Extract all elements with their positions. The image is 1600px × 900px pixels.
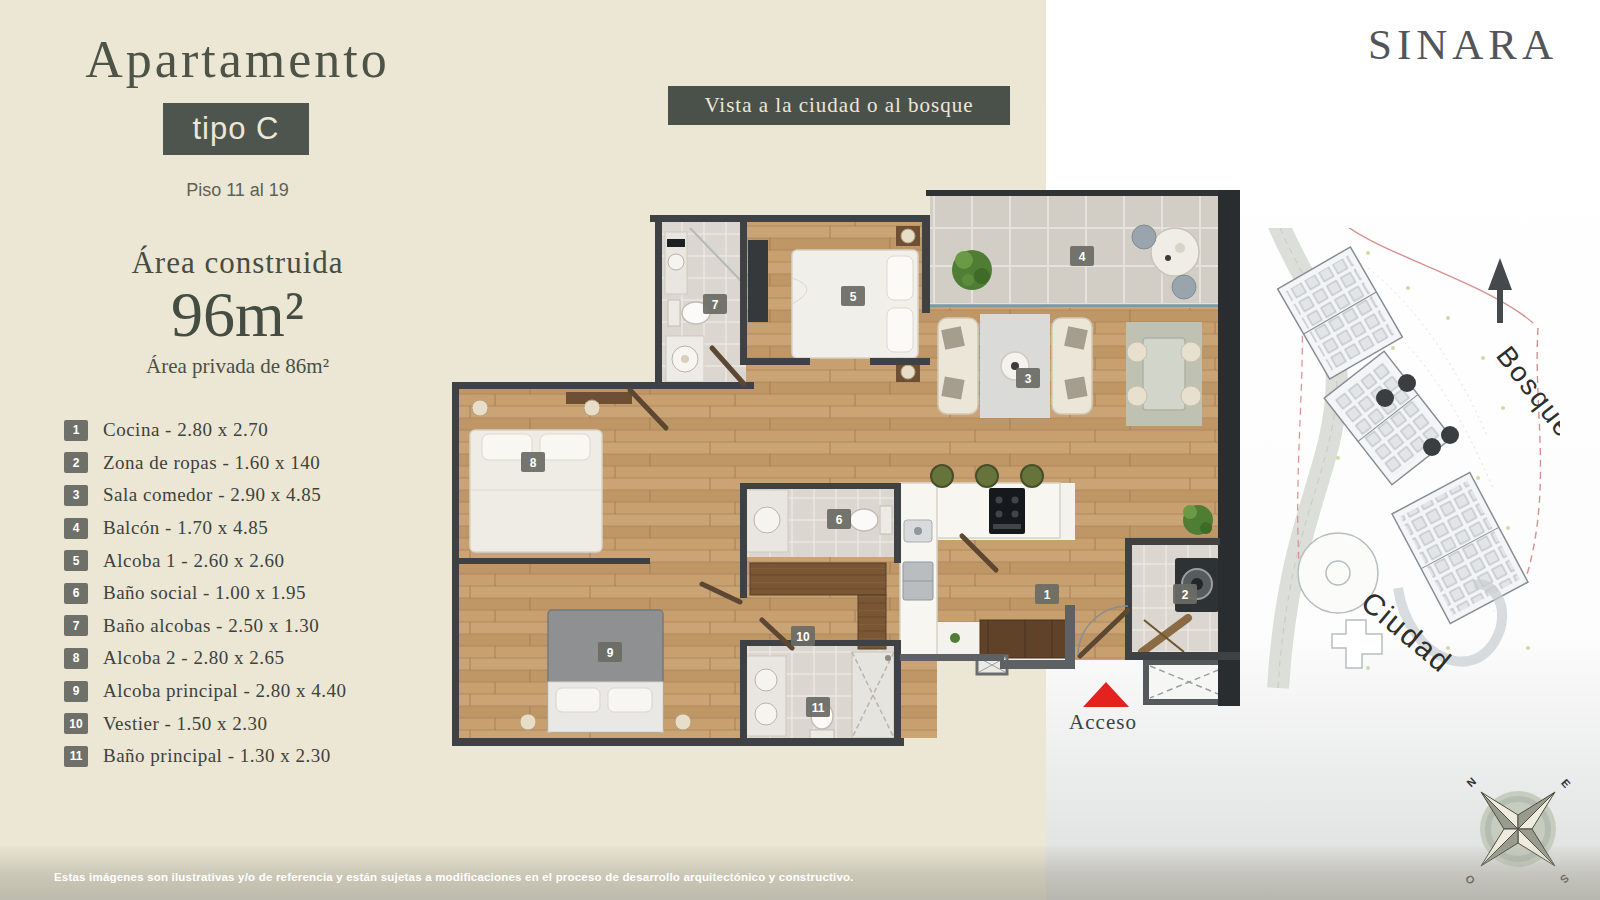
legend-item-label: Alcoba principal - 2.80 x 4.40 bbox=[103, 680, 346, 702]
vestier-closet bbox=[750, 563, 886, 595]
plan-badge: 11 bbox=[806, 697, 830, 717]
floor-plan: 1234567891011 bbox=[440, 190, 1250, 750]
plan-badge: 3 bbox=[1016, 368, 1040, 388]
legend-item: 7 Baño alcobas - 2.50 x 1.30 bbox=[64, 610, 444, 643]
legend-item-number: 5 bbox=[64, 550, 88, 571]
view-banner: Vista a la ciudad o al bosque bbox=[668, 86, 1010, 125]
private-area-label: Área privada de 86m² bbox=[0, 354, 475, 379]
legend-item-number: 7 bbox=[64, 615, 88, 636]
footer-band: Estas imágenes son ilustrativas y/o de r… bbox=[0, 846, 1600, 900]
compass-e: E bbox=[1559, 777, 1573, 790]
svg-text:8: 8 bbox=[530, 456, 537, 470]
legend-item-number: 10 bbox=[64, 713, 88, 734]
legend-item-number: 1 bbox=[64, 420, 88, 441]
dining-set bbox=[1126, 322, 1202, 426]
site-map: Bosque Ciudad bbox=[1248, 228, 1560, 698]
kitchen-island-dark bbox=[980, 620, 1068, 658]
brochure-page: Apartamento tipo C Piso 11 al 19 Área co… bbox=[0, 0, 1600, 900]
legend-item-number: 3 bbox=[64, 485, 88, 506]
page-title: Apartamento bbox=[0, 30, 475, 89]
svg-text:2: 2 bbox=[1182, 588, 1189, 602]
kitchen-wood-center bbox=[937, 540, 1075, 622]
legend-item: 9 Alcoba principal - 2.80 x 4.40 bbox=[64, 675, 444, 708]
floors-label: Piso 11 al 19 bbox=[0, 180, 475, 201]
legend-item-label: Baño alcobas - 2.50 x 1.30 bbox=[103, 615, 319, 637]
legend-item-number: 9 bbox=[64, 681, 88, 702]
legend-item-number: 11 bbox=[64, 746, 88, 767]
legend-item: 6 Baño social - 1.00 x 1.95 bbox=[64, 577, 444, 610]
site-plus-building bbox=[1332, 620, 1382, 668]
legend-item: 11 Baño principal - 1.30 x 2.30 bbox=[64, 740, 444, 773]
plan-badge: 10 bbox=[791, 626, 815, 646]
compass-n: N bbox=[1464, 775, 1478, 789]
plan-badge: 2 bbox=[1173, 584, 1197, 604]
north-arrow-icon bbox=[1488, 258, 1512, 323]
bosque-label: Bosque bbox=[1490, 340, 1560, 443]
footer-disclaimer: Estas imágenes son ilustrativas y/o de r… bbox=[54, 871, 854, 883]
plan-badge: 4 bbox=[1070, 246, 1094, 266]
plan-badge: 5 bbox=[841, 286, 865, 306]
svg-text:11: 11 bbox=[812, 701, 825, 715]
svg-text:10: 10 bbox=[796, 630, 810, 644]
legend-item-label: Zona de ropas - 1.60 x 140 bbox=[103, 452, 320, 474]
svg-text:5: 5 bbox=[850, 290, 857, 304]
plan-badge: 6 bbox=[827, 509, 851, 529]
plan-badge: 7 bbox=[703, 294, 727, 314]
apartment-type-badge: tipo C bbox=[163, 103, 309, 155]
legend-item-label: Vestier - 1.50 x 2.30 bbox=[103, 713, 268, 735]
legend-item: 8 Alcoba 2 - 2.80 x 2.65 bbox=[64, 642, 444, 675]
plan-badge: 1 bbox=[1035, 584, 1059, 604]
apartment-type-label: tipo C bbox=[193, 111, 280, 147]
access-label: Acceso bbox=[1033, 710, 1173, 735]
legend-item-label: Baño principal - 1.30 x 2.30 bbox=[103, 745, 331, 767]
built-area-label: Área construida bbox=[0, 245, 475, 281]
svg-text:4: 4 bbox=[1079, 250, 1086, 264]
legend-item-label: Sala comedor - 2.90 x 4.85 bbox=[103, 484, 321, 506]
legend-item: 1 Cocina - 2.80 x 2.70 bbox=[64, 414, 444, 447]
legend-item: 2 Zona de ropas - 1.60 x 140 bbox=[64, 447, 444, 480]
legend-item-label: Alcoba 1 - 2.60 x 2.60 bbox=[103, 550, 284, 572]
legend-item-number: 8 bbox=[64, 648, 88, 669]
room-legend: 1 Cocina - 2.80 x 2.70 2 Zona de ropas -… bbox=[64, 414, 444, 773]
legend-item: 3 Sala comedor - 2.90 x 4.85 bbox=[64, 479, 444, 512]
svg-text:7: 7 bbox=[712, 298, 719, 312]
legend-item: 4 Balcón - 1.70 x 4.85 bbox=[64, 512, 444, 545]
bedroom5-closet bbox=[748, 240, 768, 322]
bedroom8-dresser bbox=[566, 392, 632, 404]
plan-badge: 8 bbox=[521, 452, 545, 472]
access-arrow-icon bbox=[1083, 682, 1129, 707]
view-banner-text: Vista a la ciudad o al bosque bbox=[704, 93, 973, 118]
built-area-value: 96m² bbox=[0, 278, 475, 352]
svg-text:1: 1 bbox=[1044, 588, 1051, 602]
legend-item: 10 Vestier - 1.50 x 2.30 bbox=[64, 707, 444, 740]
svg-text:3: 3 bbox=[1025, 372, 1032, 386]
legend-item-number: 4 bbox=[64, 518, 88, 539]
plan-badge: 9 bbox=[598, 642, 622, 662]
legend-item-label: Cocina - 2.80 x 2.70 bbox=[103, 419, 268, 441]
sofa-set bbox=[938, 314, 1092, 418]
svg-text:6: 6 bbox=[836, 513, 843, 527]
site-building-3 bbox=[1392, 473, 1528, 624]
legend-item-number: 6 bbox=[64, 583, 88, 604]
legend-item: 5 Alcoba 1 - 2.60 x 2.60 bbox=[64, 544, 444, 577]
svg-text:9: 9 bbox=[607, 646, 614, 660]
legend-item-label: Alcoba 2 - 2.80 x 2.65 bbox=[103, 647, 284, 669]
entry-plant bbox=[1183, 505, 1213, 535]
legend-item-label: Baño social - 1.00 x 1.95 bbox=[103, 582, 306, 604]
brand-logo: SINARA bbox=[1368, 20, 1548, 69]
legend-item-label: Balcón - 1.70 x 4.85 bbox=[103, 517, 268, 539]
legend-item-number: 2 bbox=[64, 452, 88, 473]
